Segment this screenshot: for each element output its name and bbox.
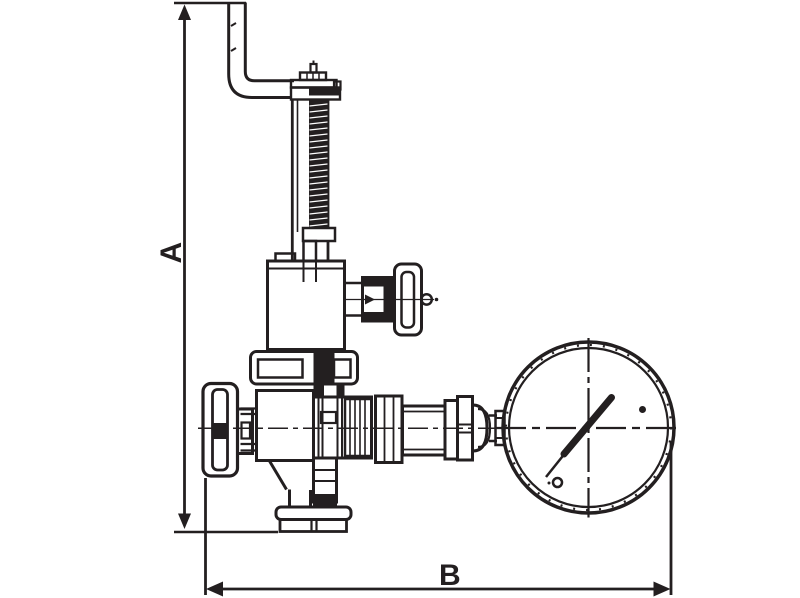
svg-text:B: B (439, 559, 461, 592)
svg-text:A: A (155, 242, 188, 264)
